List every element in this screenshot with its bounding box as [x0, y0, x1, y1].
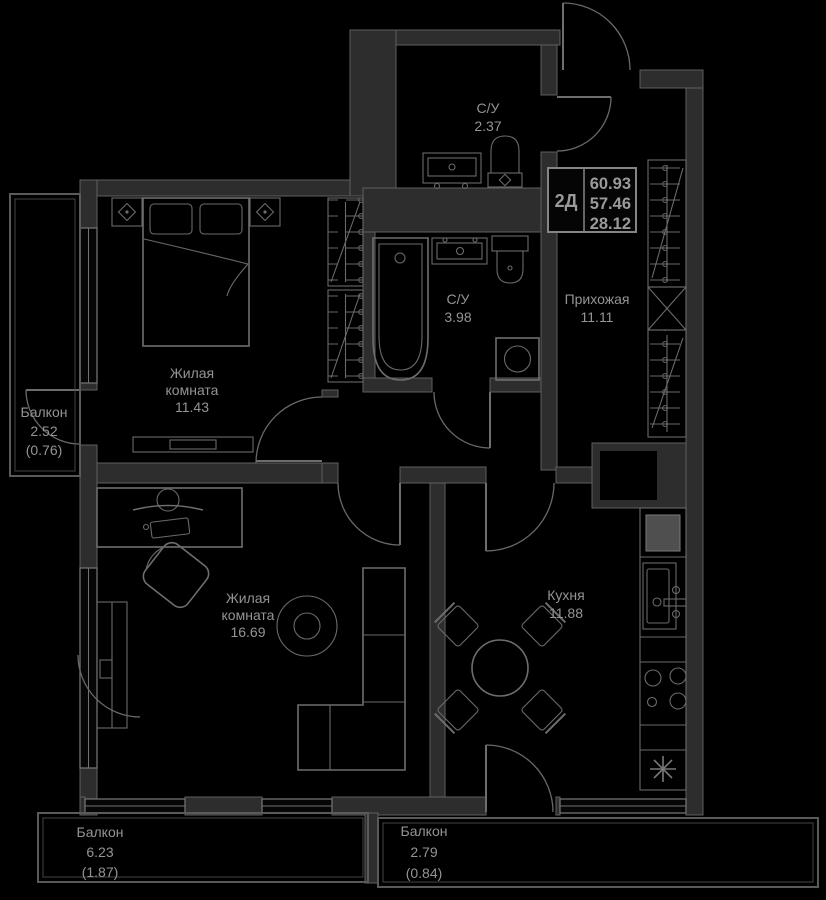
svg-text:3.98: 3.98 — [444, 309, 471, 325]
hallway-wardrobe-icon — [648, 160, 686, 437]
hallway-label: Прихожая 11.11 — [565, 291, 630, 325]
stove-icon — [645, 668, 686, 709]
ventilation-shaft — [592, 443, 686, 508]
living-room-door — [338, 483, 400, 545]
main-bathroom-label: С/У 3.98 — [444, 291, 471, 325]
svg-text:Кухня: Кухня — [547, 587, 584, 603]
area-without-balconies-value: 57.46 — [590, 195, 631, 213]
svg-text:2.37: 2.37 — [474, 118, 501, 134]
bedroom-window — [80, 228, 97, 383]
svg-text:11.88: 11.88 — [549, 605, 583, 621]
svg-text:С/У: С/У — [447, 291, 470, 307]
svg-text:2.79: 2.79 — [410, 844, 437, 860]
bathtub-icon — [373, 238, 428, 380]
svg-text:11.11: 11.11 — [581, 309, 614, 325]
kitchen-counter-icon — [640, 508, 686, 790]
kitchen-sink-icon — [643, 563, 686, 629]
kitchen-label: Кухня 11.88 — [547, 587, 584, 621]
svg-text:Жилая: Жилая — [226, 590, 270, 606]
entry-door — [563, 3, 630, 70]
apartment-type-label: 2Д — [555, 191, 578, 211]
svg-text:2.52: 2.52 — [30, 423, 57, 439]
svg-text:Балкон: Балкон — [77, 824, 124, 840]
counter-unit-icon — [646, 515, 680, 551]
svg-text:11.43: 11.43 — [175, 399, 209, 415]
balcony-south-label: Балкон 2.79 (0.84) — [401, 823, 448, 881]
guest-bathroom-label: С/У 2.37 — [474, 100, 501, 134]
svg-text:Балкон: Балкон — [21, 404, 68, 420]
living-room-window-south-2 — [262, 799, 332, 813]
nightstand-right-icon — [250, 198, 280, 226]
bedroom-label: Жилая комната 11.43 — [166, 365, 219, 415]
svg-text:Прихожая: Прихожая — [565, 291, 630, 307]
fridge-star-icon — [650, 756, 676, 782]
kitchen-balcony-door — [486, 745, 553, 812]
guest-toilet-icon — [488, 136, 522, 187]
tv-stand-icon — [133, 437, 253, 452]
sofa-icon — [298, 568, 405, 770]
ceiling-lamp-icon — [277, 596, 337, 656]
kitchen-window-south — [560, 799, 686, 813]
svg-text:16.69: 16.69 — [230, 624, 265, 640]
nightstand-left-icon — [112, 198, 142, 226]
floor-plan: 2Д 60.93 57.46 28.12 Жилая комната 11.43… — [0, 0, 826, 900]
living-room-window-south-1 — [85, 799, 185, 813]
svg-text:комната: комната — [166, 382, 219, 398]
main-toilet-icon — [492, 236, 528, 283]
svg-text:6.23: 6.23 — [86, 844, 113, 860]
living-area-value: 28.12 — [590, 215, 631, 233]
bed-icon — [143, 198, 249, 346]
svg-text:(0.84): (0.84) — [406, 865, 443, 881]
svg-text:Жилая: Жилая — [170, 365, 214, 381]
legend: 2Д 60.93 57.46 28.12 — [548, 168, 636, 233]
bedroom-door — [256, 397, 322, 463]
balcony-south-west-label: Балкон 6.23 (1.87) — [77, 824, 124, 880]
svg-text:С/У: С/У — [477, 100, 500, 116]
balcony-west-label: Балкон 2.52 (0.76) — [21, 404, 68, 458]
guest-bathroom-door — [557, 97, 611, 151]
washing-machine-icon — [496, 338, 539, 380]
main-bathroom-door — [434, 392, 490, 448]
svg-text:Балкон: Балкон — [401, 823, 448, 839]
kitchen-door — [486, 483, 554, 551]
main-bathroom-sink-icon — [432, 238, 487, 264]
living-room-window-west — [80, 568, 97, 768]
floor-plan-canvas: 2Д 60.93 57.46 28.12 Жилая комната 11.43… — [0, 0, 826, 900]
guest-bathroom-sink-icon — [423, 153, 481, 189]
desk-icon — [97, 488, 242, 547]
dining-chairs-icon — [434, 602, 566, 734]
total-area-value: 60.93 — [590, 175, 631, 193]
living-room-label: Жилая комната 16.69 — [222, 590, 275, 640]
bedroom-wardrobe-icon — [328, 198, 363, 382]
svg-text:комната: комната — [222, 607, 275, 623]
dining-table-icon — [472, 640, 528, 696]
svg-text:(0.76): (0.76) — [26, 442, 63, 458]
svg-text:(1.87): (1.87) — [82, 864, 119, 880]
